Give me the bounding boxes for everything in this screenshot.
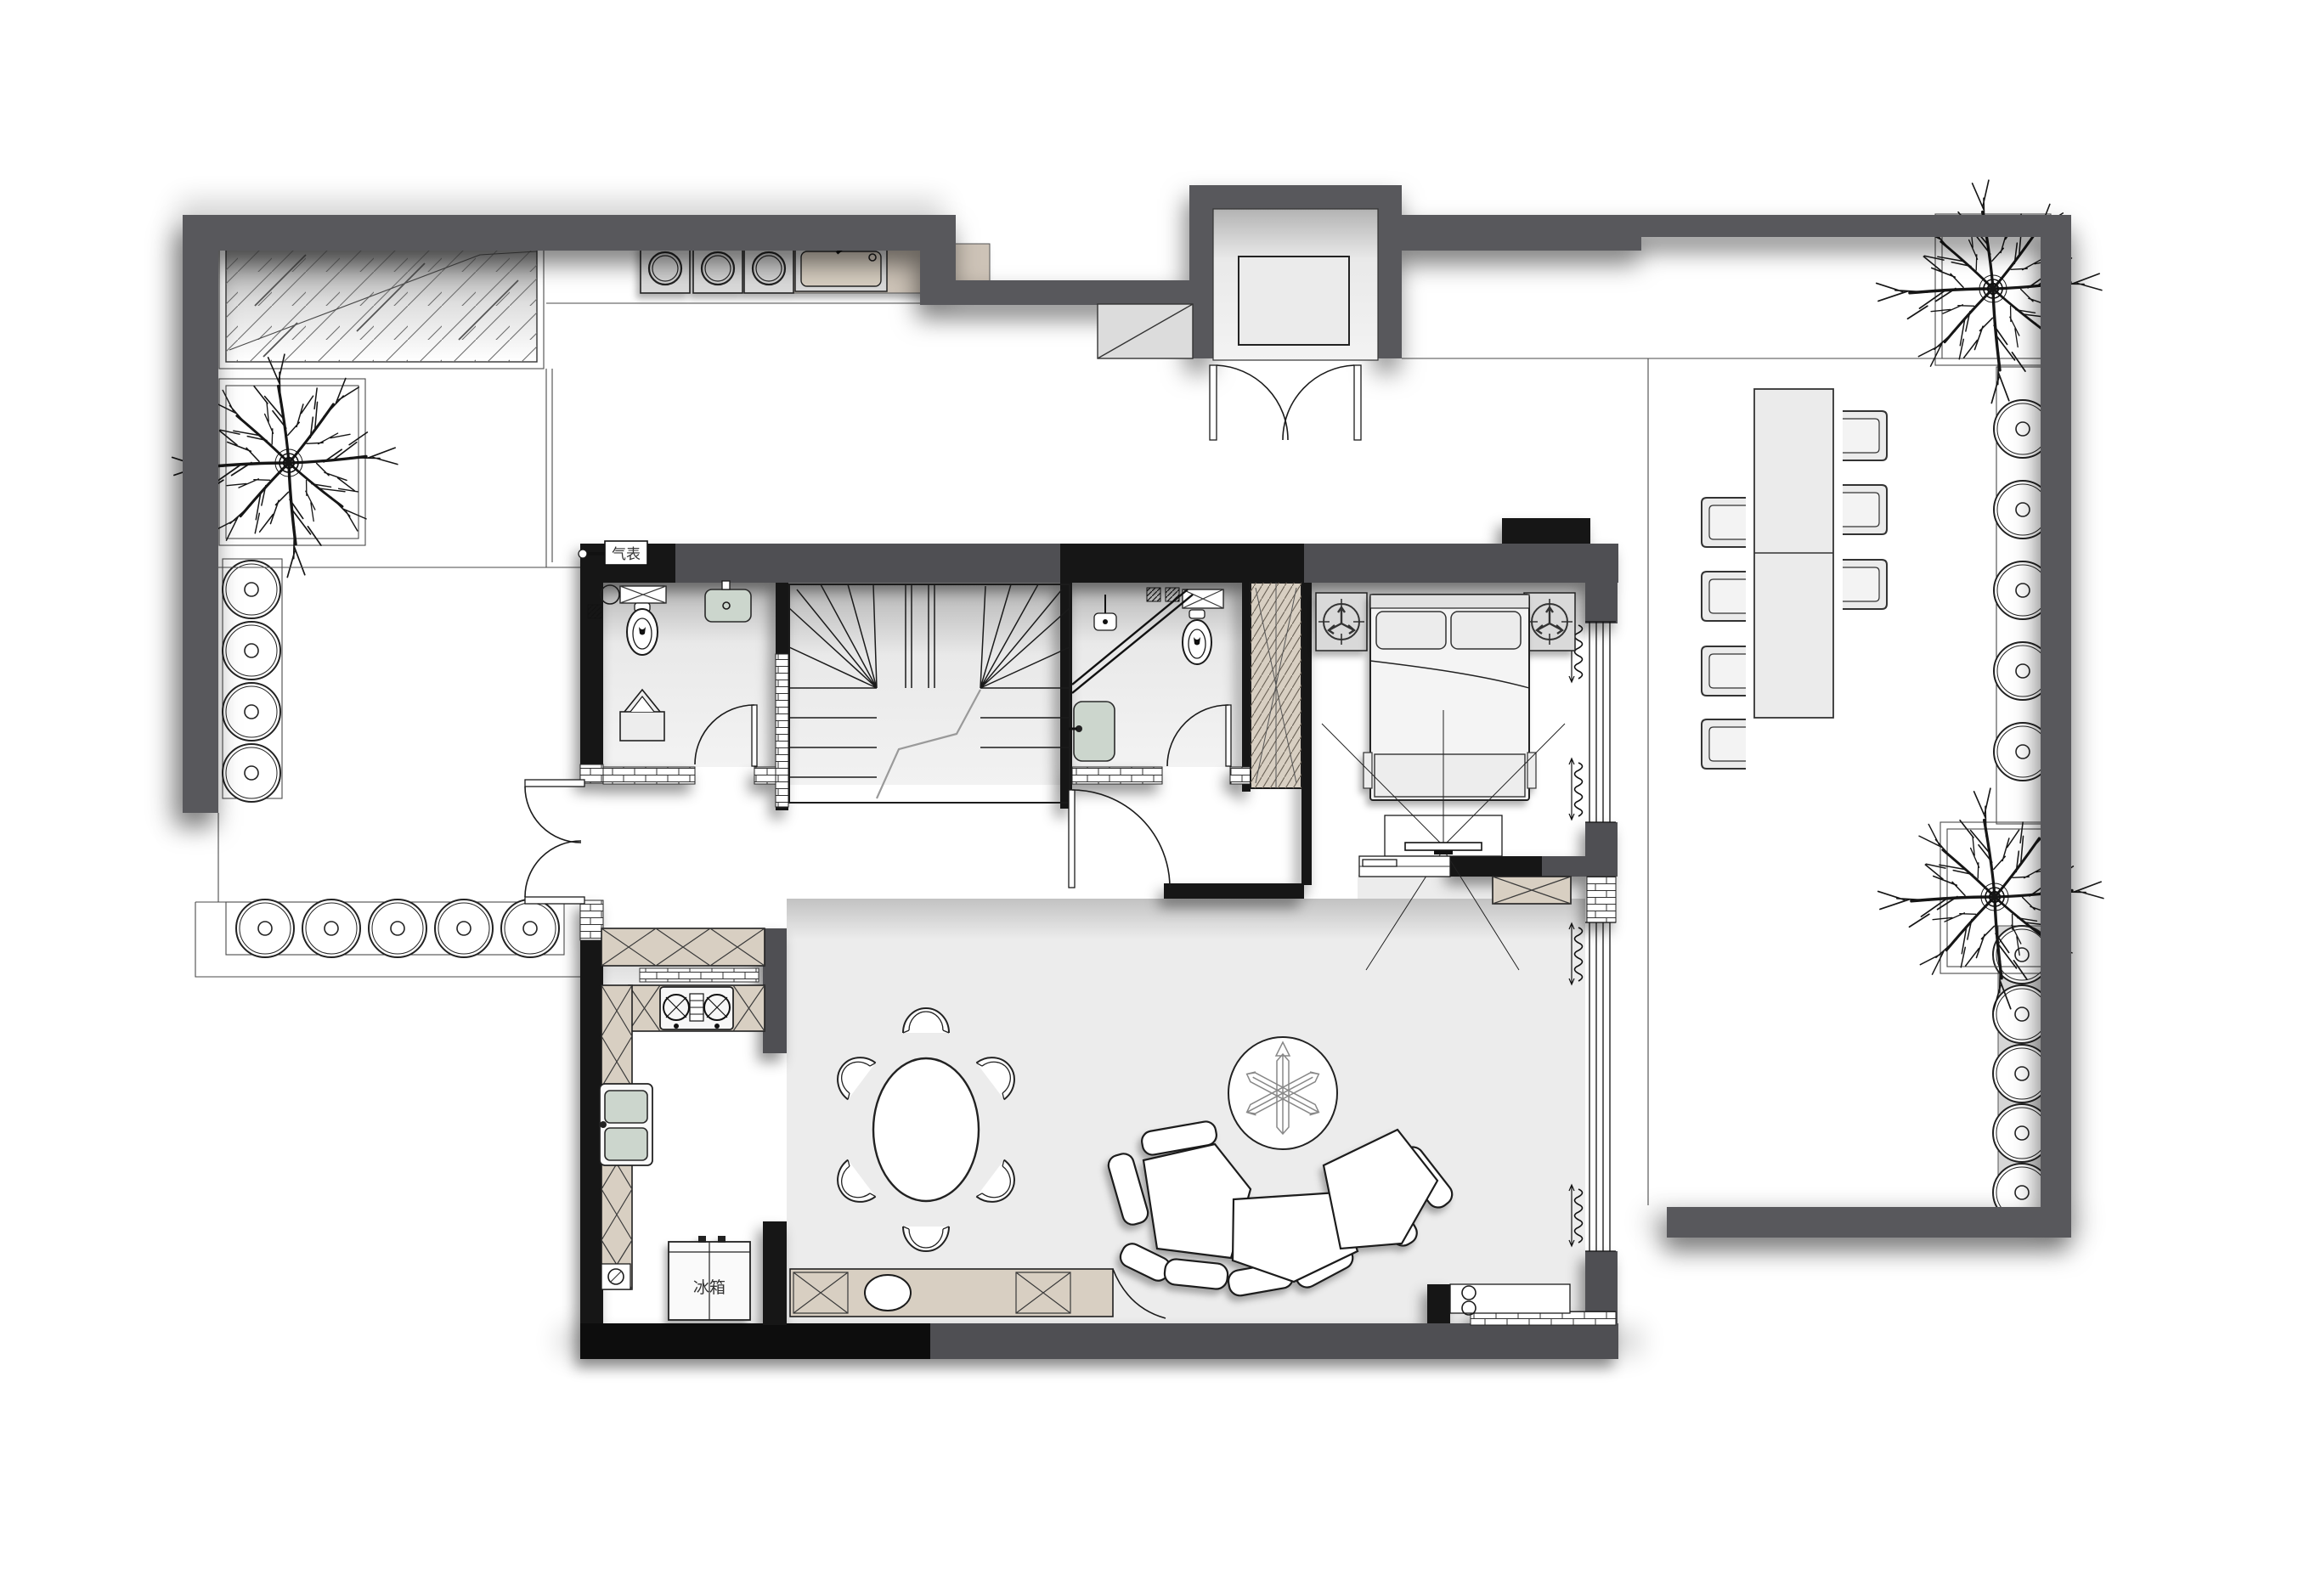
gas-meter-label: 气表 (612, 546, 641, 563)
floor-drain (601, 1264, 630, 1289)
kitchen-sink (600, 1084, 652, 1165)
bed (1364, 595, 1536, 800)
dining-table (873, 1058, 979, 1201)
floor-plan-canvas: 冰箱 (0, 0, 2315, 1596)
shoe-cabinet (1450, 1284, 1570, 1315)
gas-stove-icon (660, 987, 733, 1029)
cabinet-below-tv-wall (1493, 877, 1571, 904)
washing-machine-3 (744, 244, 793, 293)
entry-mat (1239, 257, 1349, 345)
fridge-label: 冰箱 (693, 1278, 726, 1297)
floor-plan-page: 冰箱 (0, 0, 2315, 1596)
exhaust-fan-icon (620, 586, 666, 603)
sideboard-console (790, 1269, 1166, 1318)
washing-machine-2 (693, 244, 742, 293)
sliding-panel (1359, 856, 1450, 877)
tv-icon (1405, 843, 1482, 850)
refrigerator: 冰箱 (669, 1236, 750, 1320)
bathtub (1069, 702, 1115, 761)
pillow (1451, 612, 1521, 649)
wardrobe-closet (1251, 583, 1301, 788)
staircase-floor (788, 583, 1060, 803)
washing-machine-1 (641, 244, 690, 293)
pillow (1376, 612, 1446, 649)
stove-counter (629, 985, 765, 1031)
plant-symbol (1228, 1037, 1337, 1149)
glass-canopy (219, 236, 544, 369)
entry-ramp (1098, 304, 1193, 358)
